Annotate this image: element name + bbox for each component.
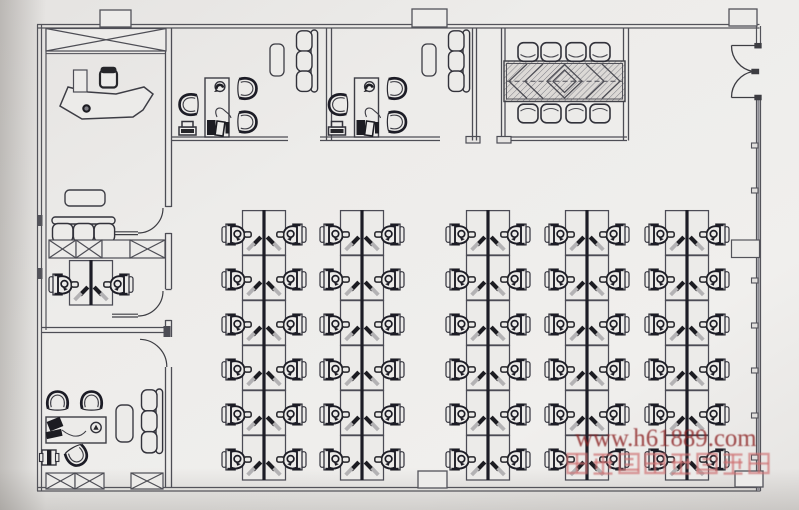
svg-text:www.h61889.com: www.h61889.com: [575, 425, 757, 452]
